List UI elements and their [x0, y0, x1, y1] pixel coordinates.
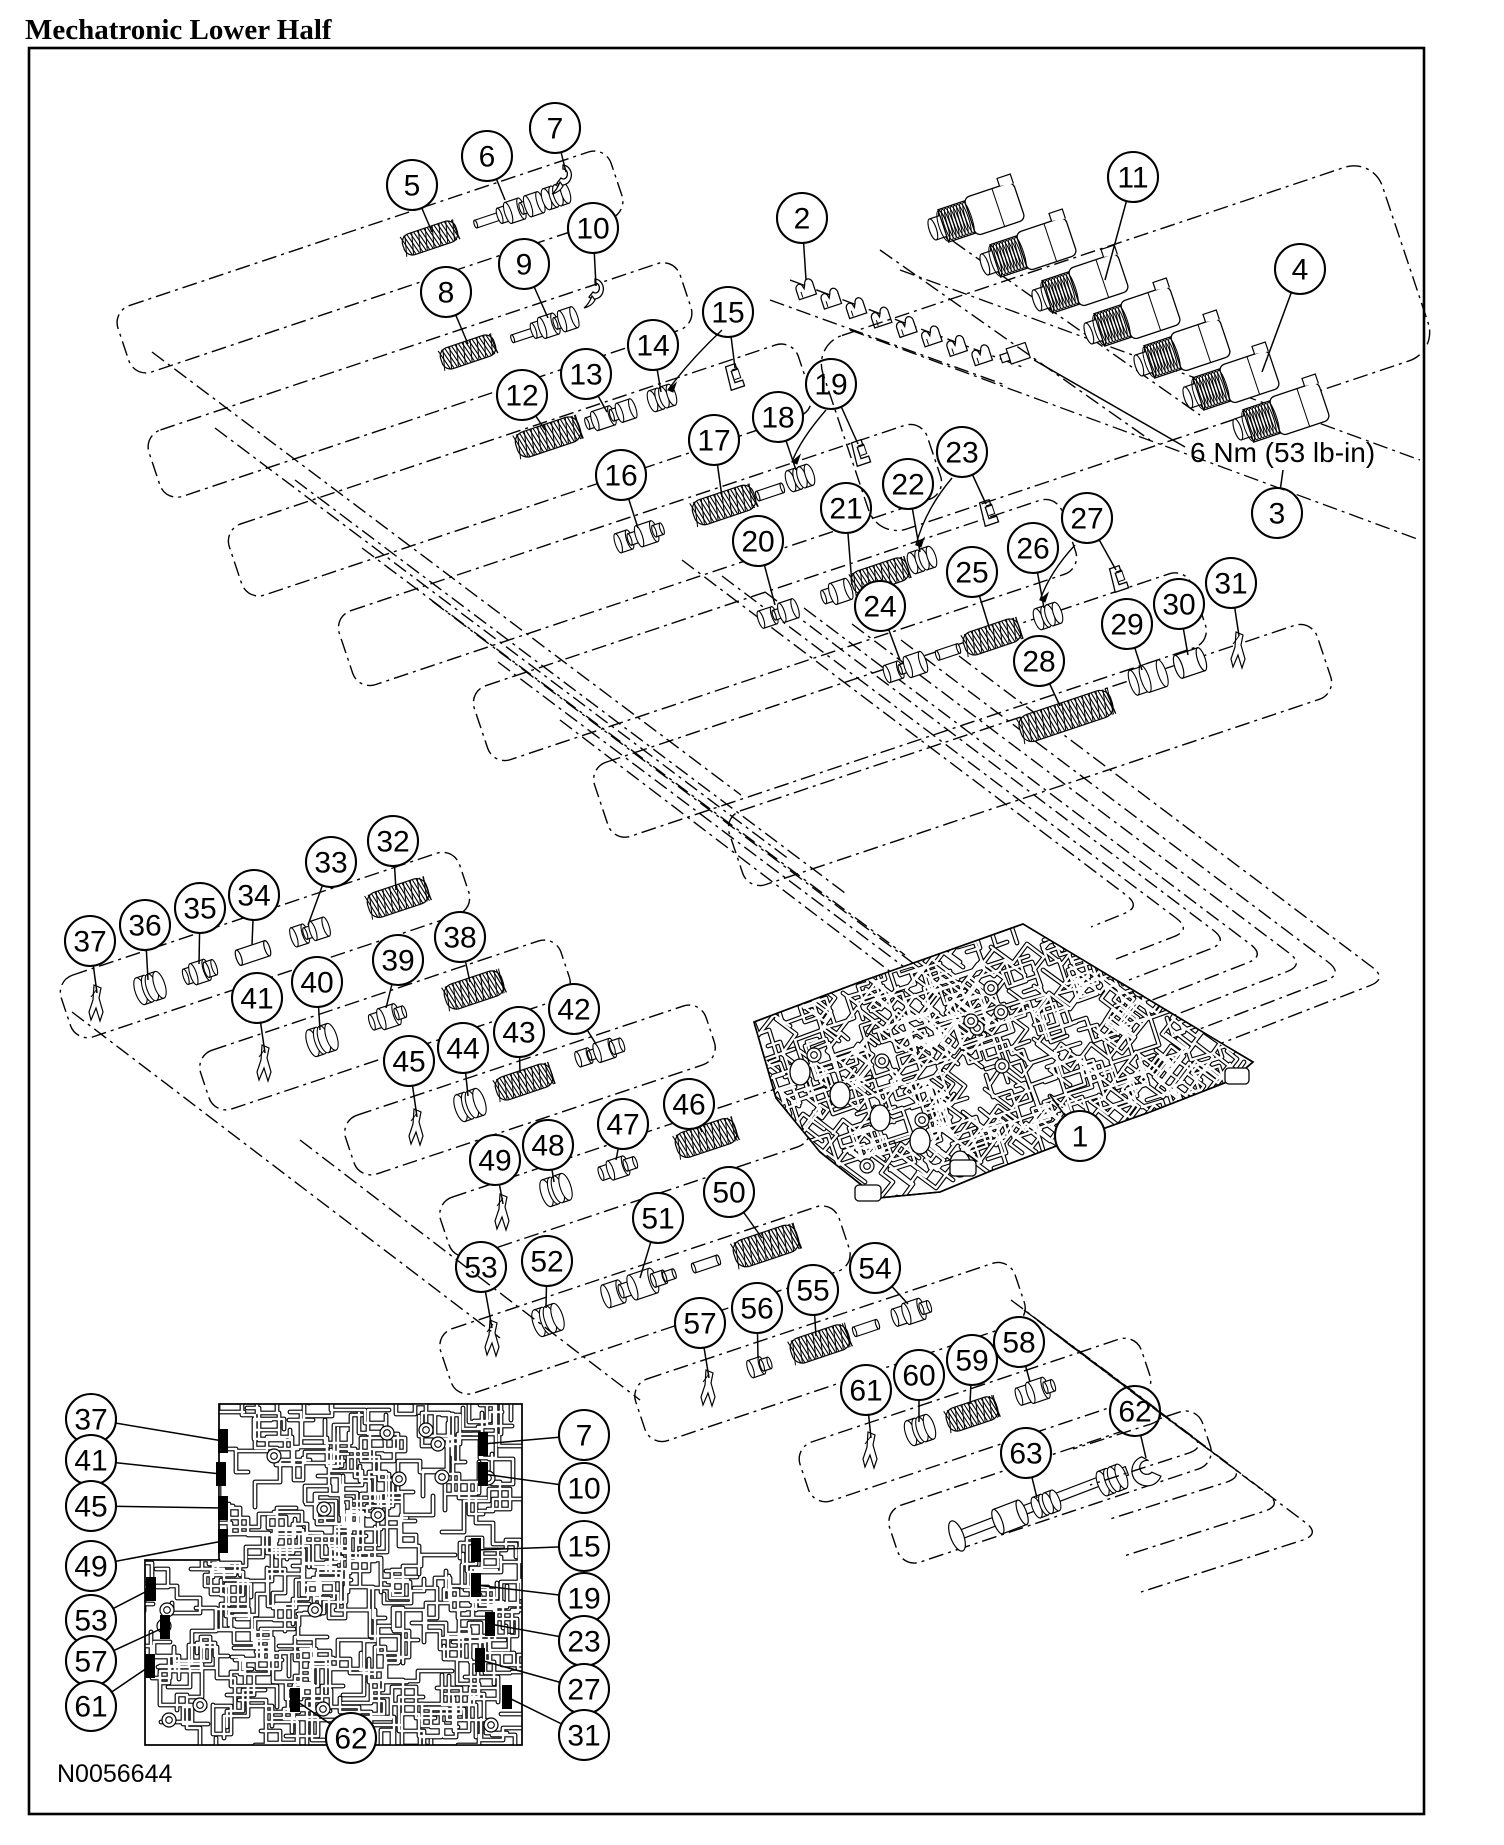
svg-text:7: 7 [547, 113, 564, 146]
svg-text:15: 15 [567, 1531, 600, 1564]
svg-text:62: 62 [1118, 1396, 1151, 1429]
svg-text:17: 17 [697, 425, 730, 458]
svg-text:53: 53 [74, 1605, 107, 1638]
svg-text:6: 6 [479, 141, 496, 174]
svg-text:63: 63 [1009, 1438, 1042, 1471]
svg-text:45: 45 [392, 1046, 425, 1079]
svg-text:8: 8 [438, 277, 455, 310]
svg-text:27: 27 [567, 1674, 600, 1707]
svg-text:18: 18 [761, 402, 794, 435]
svg-text:N0056644: N0056644 [57, 1760, 172, 1788]
svg-text:1: 1 [1072, 1121, 1089, 1154]
svg-text:58: 58 [1002, 1327, 1035, 1360]
svg-text:46: 46 [672, 1089, 705, 1122]
svg-text:48: 48 [531, 1130, 564, 1163]
svg-text:25: 25 [955, 557, 988, 590]
svg-text:13: 13 [569, 359, 602, 392]
svg-text:3: 3 [1269, 498, 1286, 531]
svg-text:37: 37 [73, 926, 106, 959]
svg-text:59: 59 [955, 1345, 988, 1378]
svg-text:6 Nm (53 lb-in): 6 Nm (53 lb-in) [1190, 437, 1375, 468]
svg-text:54: 54 [858, 1253, 891, 1286]
svg-text:45: 45 [74, 1491, 107, 1524]
svg-text:16: 16 [604, 460, 637, 493]
svg-text:21: 21 [829, 493, 862, 526]
svg-text:23: 23 [567, 1626, 600, 1659]
svg-text:7: 7 [576, 1420, 593, 1453]
svg-text:43: 43 [502, 1017, 535, 1050]
svg-text:12: 12 [505, 380, 538, 413]
svg-text:55: 55 [796, 1275, 829, 1308]
svg-text:62: 62 [334, 1723, 367, 1756]
svg-text:49: 49 [478, 1145, 511, 1178]
svg-text:5: 5 [404, 170, 421, 203]
svg-text:52: 52 [530, 1246, 563, 1279]
svg-text:51: 51 [641, 1203, 674, 1236]
svg-text:38: 38 [443, 922, 476, 955]
svg-text:61: 61 [74, 1691, 107, 1724]
svg-text:57: 57 [683, 1308, 716, 1341]
svg-text:9: 9 [516, 249, 533, 282]
svg-text:4: 4 [1292, 254, 1309, 287]
svg-text:24: 24 [863, 591, 896, 624]
svg-text:49: 49 [74, 1551, 107, 1584]
svg-text:60: 60 [902, 1360, 935, 1393]
svg-text:20: 20 [741, 526, 774, 559]
svg-text:53: 53 [464, 1252, 497, 1285]
svg-text:31: 31 [1214, 568, 1247, 601]
svg-text:28: 28 [1022, 646, 1055, 679]
svg-text:57: 57 [74, 1646, 107, 1679]
svg-text:34: 34 [237, 880, 270, 913]
svg-text:22: 22 [891, 469, 924, 502]
svg-text:36: 36 [128, 910, 161, 943]
svg-text:31: 31 [567, 1720, 600, 1753]
svg-text:26: 26 [1016, 533, 1049, 566]
svg-text:29: 29 [1110, 609, 1143, 642]
svg-text:32: 32 [376, 826, 409, 859]
svg-text:15: 15 [711, 297, 744, 330]
svg-text:14: 14 [636, 330, 669, 363]
svg-text:41: 41 [240, 983, 273, 1016]
svg-text:33: 33 [314, 847, 347, 880]
svg-text:30: 30 [1162, 589, 1195, 622]
svg-text:47: 47 [606, 1109, 639, 1142]
svg-text:44: 44 [446, 1033, 479, 1066]
svg-text:35: 35 [183, 893, 216, 926]
svg-text:39: 39 [381, 945, 414, 978]
svg-text:10: 10 [576, 213, 609, 246]
svg-text:Mechatronic Lower Half: Mechatronic Lower Half [25, 14, 332, 46]
svg-text:61: 61 [849, 1375, 882, 1408]
svg-text:50: 50 [712, 1177, 745, 1210]
svg-text:19: 19 [567, 1583, 600, 1616]
svg-text:37: 37 [74, 1404, 107, 1437]
svg-text:42: 42 [557, 994, 590, 1027]
svg-text:41: 41 [74, 1445, 107, 1478]
svg-text:23: 23 [945, 437, 978, 470]
svg-text:10: 10 [567, 1473, 600, 1506]
svg-text:2: 2 [794, 203, 811, 236]
svg-text:56: 56 [740, 1293, 773, 1326]
svg-text:27: 27 [1070, 503, 1103, 536]
svg-text:11: 11 [1117, 162, 1148, 195]
svg-text:40: 40 [300, 967, 333, 1000]
